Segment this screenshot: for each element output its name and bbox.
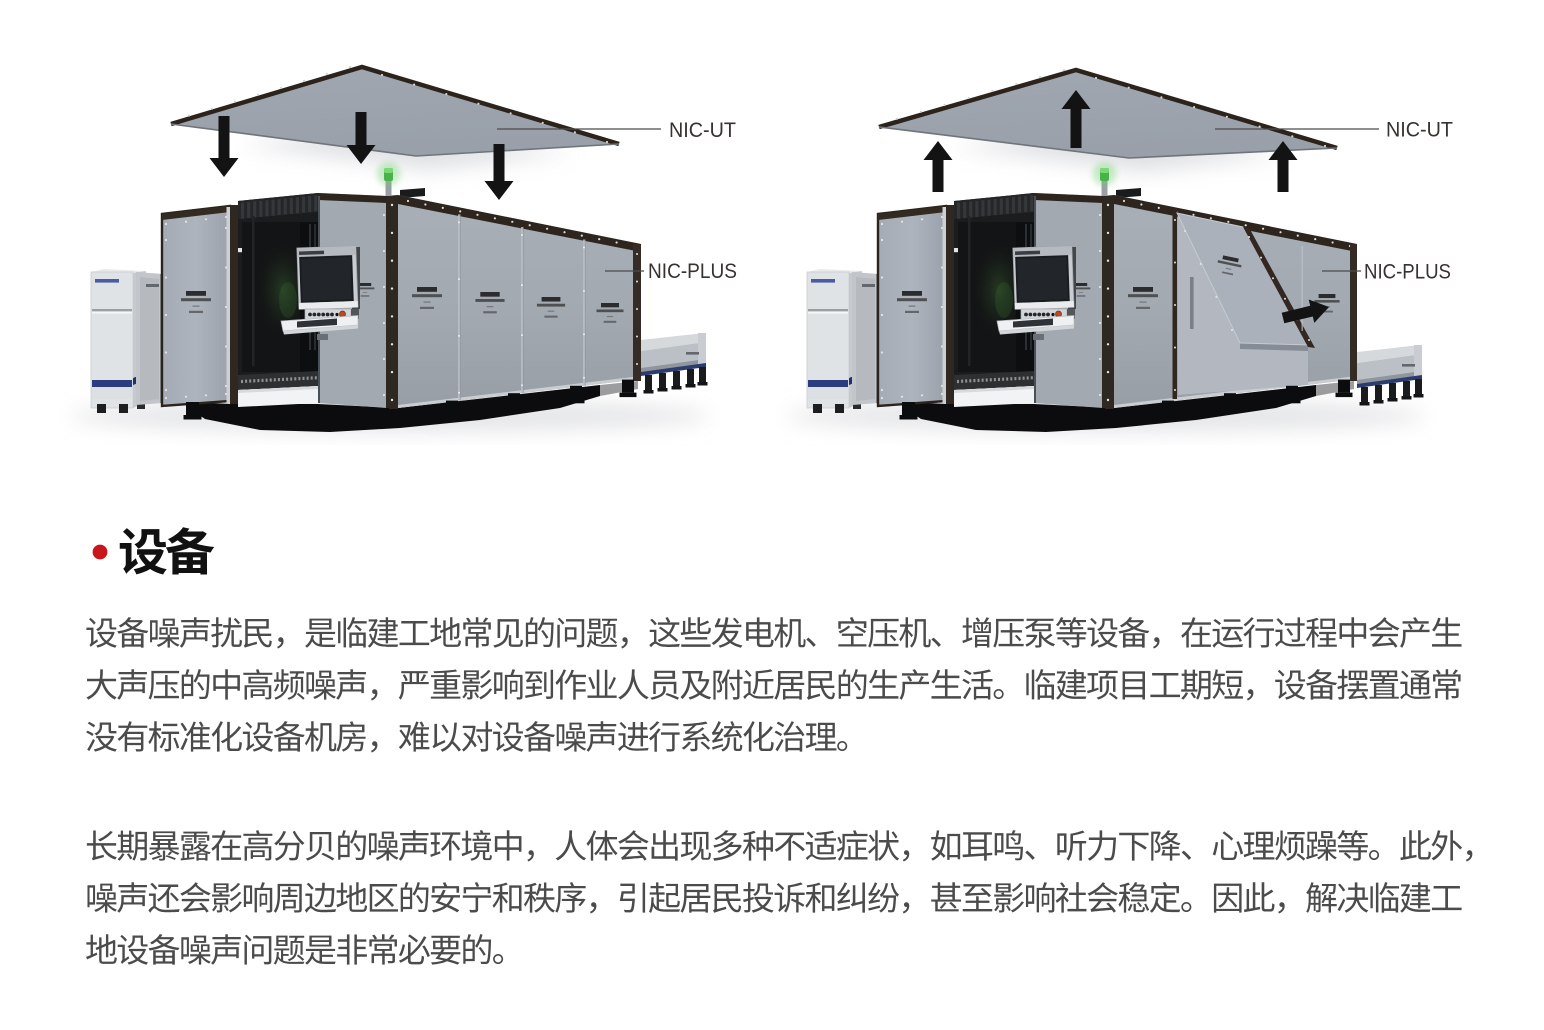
svg-text:NIC-PLUS: NIC-PLUS [1364,261,1451,284]
svg-text:NIC-UT: NIC-UT [1386,119,1453,142]
svg-text:NIC-PLUS: NIC-PLUS [648,260,737,283]
svg-text:NIC-UT: NIC-UT [669,119,736,142]
